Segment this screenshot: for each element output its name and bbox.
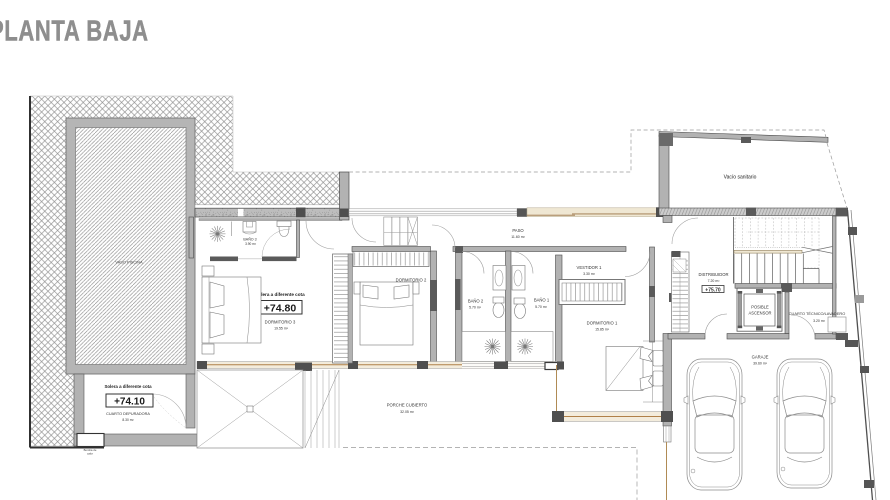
- svg-text:8.30 m²: 8.30 m²: [122, 418, 134, 422]
- svg-text:5.70 m²: 5.70 m²: [535, 305, 548, 309]
- svg-text:CUARTO TÉCNICO/LAVADERO: CUARTO TÉCNICO/LAVADERO: [789, 311, 846, 316]
- svg-text:POSIBLE: POSIBLE: [751, 304, 769, 309]
- svg-text:CUARTO DEPURADORA: CUARTO DEPURADORA: [106, 412, 150, 416]
- svg-text:PASO: PASO: [512, 228, 524, 233]
- svg-text:39.60 m²: 39.60 m²: [753, 362, 768, 366]
- svg-text:7.20 m²: 7.20 m²: [708, 279, 721, 283]
- svg-text:Solera a diferente cota: Solera a diferente cota: [104, 384, 152, 389]
- svg-text:Vacío sanitario: Vacío sanitario: [724, 174, 757, 180]
- svg-text:11.60 m²: 11.60 m²: [511, 235, 525, 239]
- svg-text:+75.70: +75.70: [705, 287, 721, 293]
- svg-text:DISTRIBUIDOR: DISTRIBUIDOR: [698, 272, 728, 277]
- svg-text:VASO PISCINA: VASO PISCINA: [115, 259, 143, 264]
- svg-text:DORMITORIO 3: DORMITORIO 3: [265, 319, 296, 324]
- svg-text:PLANTA BAJA: PLANTA BAJA: [0, 16, 149, 48]
- svg-text:DORMITORIO 1: DORMITORIO 1: [587, 320, 618, 325]
- svg-text:3.30 m²: 3.30 m²: [583, 272, 596, 276]
- svg-text:+74.10: +74.10: [114, 397, 145, 408]
- svg-text:BAÑO 1: BAÑO 1: [534, 298, 550, 303]
- svg-text:+74.80: +74.80: [264, 303, 297, 315]
- svg-text:PORCHE CUBIERTO: PORCHE CUBIERTO: [387, 402, 428, 407]
- svg-text:5.70 m²: 5.70 m²: [469, 306, 482, 310]
- svg-text:3.20 m²: 3.20 m²: [813, 319, 826, 323]
- svg-text:calor: calor: [87, 451, 93, 455]
- svg-text:Solera a diferente cota: Solera a diferente cota: [255, 292, 305, 297]
- svg-text:ASCENSOR: ASCENSOR: [749, 310, 772, 315]
- svg-text:BAÑO 2: BAÑO 2: [468, 298, 484, 303]
- svg-text:32.05 m²: 32.05 m²: [400, 410, 415, 414]
- svg-text:19.55 m²: 19.55 m²: [274, 326, 289, 330]
- svg-text:15.85 m²: 15.85 m²: [595, 328, 610, 332]
- svg-text:3.90 m²: 3.90 m²: [245, 242, 256, 246]
- svg-text:GARAJE: GARAJE: [752, 354, 769, 359]
- svg-text:VESTIDOR 1: VESTIDOR 1: [577, 265, 603, 270]
- svg-text:BAÑO 3: BAÑO 3: [243, 237, 256, 242]
